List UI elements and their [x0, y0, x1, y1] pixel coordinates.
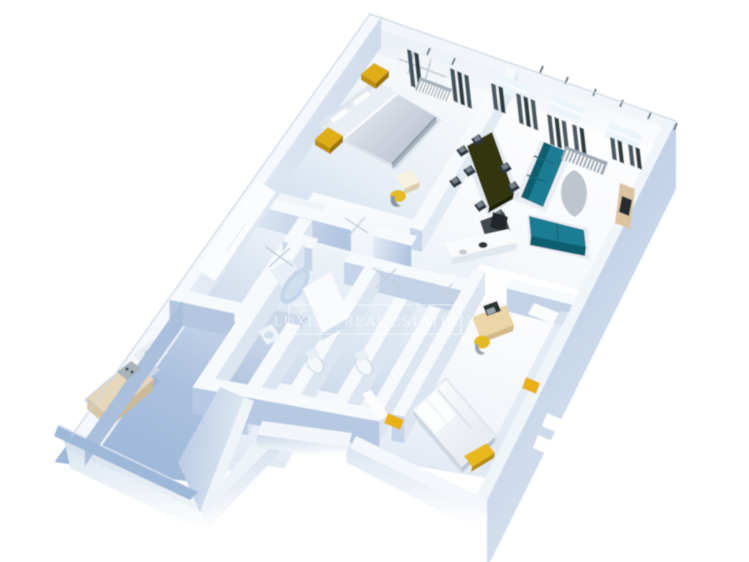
svg-text:LUXENT REAL ESTATE.CZ: LUXENT REAL ESTATE.CZ — [274, 314, 477, 330]
